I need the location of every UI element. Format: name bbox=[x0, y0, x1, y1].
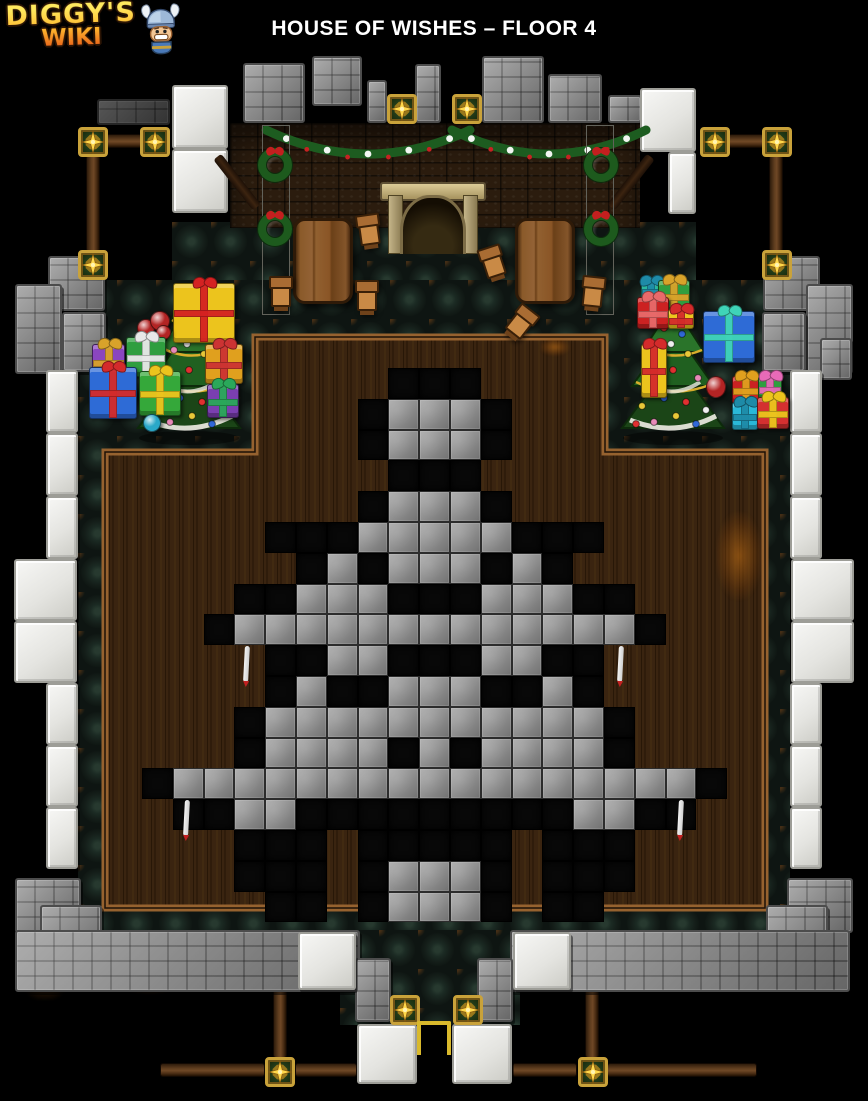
stone-floor-tile bbox=[512, 738, 542, 768]
stone-floor-tile bbox=[327, 768, 358, 799]
dug-tile bbox=[265, 584, 296, 614]
stone-floor-tile bbox=[542, 768, 573, 799]
stone-floor-tile bbox=[542, 614, 573, 645]
dug-tile bbox=[296, 522, 327, 553]
dug-tile bbox=[542, 830, 573, 861]
dug-tile bbox=[327, 522, 358, 553]
stone-wall-block bbox=[367, 80, 387, 123]
stone-floor-tile bbox=[388, 491, 419, 522]
stone-floor-tile bbox=[512, 645, 542, 676]
stone-floor-tile bbox=[419, 861, 450, 892]
dug-tile bbox=[604, 830, 635, 861]
dug-tile bbox=[419, 460, 450, 491]
dug-tile bbox=[296, 553, 327, 584]
stone-floor-tile bbox=[327, 553, 358, 584]
gift-ribbon bbox=[758, 411, 788, 418]
stone-floor-tile bbox=[327, 738, 358, 768]
marble-block bbox=[46, 496, 78, 559]
marble-block bbox=[668, 152, 696, 214]
stone-wall-block bbox=[15, 284, 62, 374]
stone-floor-tile bbox=[388, 861, 419, 892]
marble-block bbox=[791, 621, 854, 683]
christmas-wreath bbox=[584, 148, 618, 182]
marble-block bbox=[298, 932, 356, 990]
dug-tile bbox=[358, 491, 388, 522]
wooden-chair bbox=[354, 212, 384, 249]
gift-box bbox=[637, 297, 669, 329]
stone-floor-tile bbox=[296, 738, 327, 768]
stone-floor-tile bbox=[327, 707, 358, 738]
stone-floor-tile bbox=[296, 614, 327, 645]
stone-floor-tile bbox=[296, 768, 327, 799]
star-tile bbox=[140, 127, 170, 157]
gift-ribbon bbox=[638, 311, 668, 318]
dug-tile bbox=[450, 368, 481, 399]
page-title: HOUSE OF WISHES – FLOOR 4 bbox=[0, 17, 868, 41]
stone-floor-tile bbox=[573, 614, 604, 645]
stone-floor-tile bbox=[358, 738, 388, 768]
wooden-chair bbox=[268, 276, 294, 310]
marble-block bbox=[790, 745, 822, 807]
star-tile bbox=[452, 94, 482, 124]
stone-floor-tile bbox=[450, 861, 481, 892]
dug-tile bbox=[635, 614, 666, 645]
dug-tile bbox=[419, 799, 450, 830]
stone-floor-tile bbox=[481, 707, 512, 738]
dug-tile bbox=[296, 830, 327, 861]
stone-wall-block bbox=[312, 56, 362, 106]
dug-tile bbox=[573, 676, 604, 707]
dug-tile bbox=[481, 830, 512, 861]
stone-floor-tile bbox=[481, 522, 512, 553]
stone-wall-block bbox=[482, 56, 544, 123]
stone-floor-tile bbox=[512, 707, 542, 738]
dug-tile bbox=[573, 830, 604, 861]
stone-floor-tile bbox=[481, 738, 512, 768]
stone-floor-tile bbox=[450, 491, 481, 522]
stone-floor-tile bbox=[481, 584, 512, 614]
stone-wall-block bbox=[243, 63, 305, 123]
wooden-beam bbox=[86, 155, 100, 252]
stone-floor-tile bbox=[573, 707, 604, 738]
stone-floor-tile bbox=[388, 430, 419, 460]
gift-box bbox=[703, 311, 755, 363]
dug-tile bbox=[358, 861, 388, 892]
dug-tile bbox=[450, 584, 481, 614]
stone-floor-tile bbox=[173, 768, 204, 799]
marble-block bbox=[14, 621, 77, 683]
dug-tile bbox=[573, 861, 604, 892]
dug-tile bbox=[296, 861, 327, 892]
dug-tile bbox=[696, 768, 727, 799]
stone-floor-tile bbox=[388, 614, 419, 645]
chair-seat bbox=[482, 254, 507, 279]
gift-ribbon bbox=[208, 399, 238, 406]
gift-box bbox=[641, 344, 667, 398]
stone-floor-tile bbox=[481, 768, 512, 799]
stone-floor-tile bbox=[388, 707, 419, 738]
star-tile bbox=[265, 1057, 295, 1087]
stone-floor-tile bbox=[388, 676, 419, 707]
dug-tile bbox=[358, 830, 388, 861]
wooden-beam bbox=[160, 1063, 265, 1077]
stone-floor-tile bbox=[327, 614, 358, 645]
floor-scuff bbox=[540, 338, 570, 356]
dug-tile bbox=[542, 522, 573, 553]
stone-floor-tile bbox=[265, 738, 296, 768]
christmas-wreath bbox=[258, 148, 292, 182]
dug-tile bbox=[265, 676, 296, 707]
marble-block bbox=[46, 745, 78, 807]
gift-ribbon bbox=[733, 414, 757, 421]
star-tile bbox=[387, 94, 417, 124]
stone-wall-block bbox=[97, 99, 170, 125]
star-tile bbox=[78, 127, 108, 157]
ornament-ball bbox=[706, 376, 726, 398]
dug-tile bbox=[604, 707, 635, 738]
dug-tile bbox=[512, 522, 542, 553]
dug-tile bbox=[542, 861, 573, 892]
dug-tile bbox=[450, 460, 481, 491]
dug-tile bbox=[512, 799, 542, 830]
dug-tile bbox=[234, 584, 265, 614]
marble-block bbox=[790, 370, 822, 433]
gift-ribbon bbox=[206, 362, 242, 369]
marble-block bbox=[790, 807, 822, 869]
dug-tile bbox=[358, 430, 388, 460]
stone-floor-tile bbox=[388, 892, 419, 922]
dug-tile bbox=[481, 892, 512, 922]
stone-floor-tile bbox=[419, 892, 450, 922]
stone-floor-tile bbox=[542, 738, 573, 768]
marble-block bbox=[172, 85, 228, 149]
marble-block bbox=[790, 683, 822, 745]
stone-floor-tile bbox=[419, 522, 450, 553]
stone-floor-tile bbox=[450, 768, 481, 799]
stone-floor-tile bbox=[542, 584, 573, 614]
chair-seat bbox=[357, 291, 377, 311]
dug-tile bbox=[419, 368, 450, 399]
dug-tile bbox=[234, 861, 265, 892]
marble-block bbox=[46, 683, 78, 745]
stone-floor-tile bbox=[481, 614, 512, 645]
dug-tile bbox=[388, 584, 419, 614]
dug-tile bbox=[265, 830, 296, 861]
wooden-table bbox=[515, 218, 575, 304]
gift-ribbon bbox=[669, 318, 693, 325]
dug-tile bbox=[481, 399, 512, 430]
stone-floor-tile bbox=[358, 645, 388, 676]
dug-tile bbox=[234, 707, 265, 738]
christmas-wreath bbox=[584, 212, 618, 246]
stone-wall-block bbox=[820, 338, 852, 380]
stone-floor-tile bbox=[512, 768, 542, 799]
dug-tile bbox=[358, 676, 388, 707]
dug-tile bbox=[542, 645, 573, 676]
stone-floor-tile bbox=[296, 584, 327, 614]
stone-wall-block bbox=[548, 74, 602, 123]
dug-tile bbox=[388, 738, 419, 768]
dug-tile bbox=[388, 368, 419, 399]
dug-tile bbox=[604, 584, 635, 614]
dug-tile bbox=[542, 892, 573, 922]
marble-block bbox=[46, 433, 78, 496]
dug-tile bbox=[265, 861, 296, 892]
dug-tile bbox=[573, 522, 604, 553]
dug-tile bbox=[327, 799, 358, 830]
star-tile bbox=[390, 995, 420, 1025]
gift-box bbox=[205, 344, 243, 384]
stone-floor-tile bbox=[388, 522, 419, 553]
stone-floor-tile bbox=[635, 768, 666, 799]
dug-tile bbox=[358, 553, 388, 584]
chair-seat bbox=[358, 224, 381, 247]
marble-block bbox=[790, 496, 822, 559]
wooden-table bbox=[293, 218, 353, 304]
dug-tile bbox=[265, 645, 296, 676]
stone-floor-tile bbox=[388, 399, 419, 430]
wooden-beam bbox=[512, 1063, 577, 1077]
dug-tile bbox=[481, 491, 512, 522]
marble-block bbox=[14, 559, 77, 621]
dug-tile bbox=[234, 738, 265, 768]
wooden-beam bbox=[607, 1063, 757, 1077]
dug-tile bbox=[450, 738, 481, 768]
stone-floor-tile bbox=[419, 553, 450, 584]
stone-floor-tile bbox=[327, 645, 358, 676]
chair-seat bbox=[582, 286, 604, 308]
dug-tile bbox=[481, 553, 512, 584]
gift-box bbox=[732, 402, 758, 430]
stone-floor-tile bbox=[419, 491, 450, 522]
page: { "header": { "logo_line1": "DIGGY'S", "… bbox=[0, 0, 868, 1101]
dug-tile bbox=[481, 799, 512, 830]
floor-scuff bbox=[716, 512, 762, 600]
stone-floor-tile bbox=[604, 614, 635, 645]
stone-floor-tile bbox=[542, 707, 573, 738]
stone-floor-tile bbox=[388, 768, 419, 799]
gift-ribbon bbox=[704, 334, 754, 341]
stone-floor-tile bbox=[450, 614, 481, 645]
marble-block bbox=[357, 1024, 417, 1084]
ornament-ball bbox=[143, 414, 161, 432]
dug-tile bbox=[481, 861, 512, 892]
stone-floor-tile bbox=[419, 768, 450, 799]
marble-block bbox=[791, 559, 854, 621]
wooden-chair bbox=[354, 280, 380, 314]
dug-tile bbox=[419, 645, 450, 676]
gift-ribbon bbox=[174, 310, 234, 317]
wooden-chair bbox=[578, 275, 607, 312]
stone-floor-tile bbox=[234, 799, 265, 830]
dug-tile bbox=[358, 892, 388, 922]
dug-tile bbox=[573, 584, 604, 614]
stone-floor-tile bbox=[419, 430, 450, 460]
gift-box bbox=[173, 283, 235, 343]
chair-seat bbox=[271, 287, 291, 307]
stone-floor-tile bbox=[450, 676, 481, 707]
stone-wall-block bbox=[762, 312, 806, 372]
header: DIGGY'S WIKI HOUSE OF WISHES – FLOOR 4 bbox=[0, 0, 868, 58]
dug-tile bbox=[481, 430, 512, 460]
star-tile bbox=[453, 995, 483, 1025]
wooden-beam bbox=[295, 1063, 357, 1077]
stone-floor-tile bbox=[265, 614, 296, 645]
stone-floor-tile bbox=[542, 676, 573, 707]
stone-floor-tile bbox=[450, 522, 481, 553]
marble-block bbox=[513, 932, 571, 990]
dug-tile bbox=[142, 768, 173, 799]
dug-tile bbox=[296, 645, 327, 676]
stone-floor-tile bbox=[450, 707, 481, 738]
stone-floor-tile bbox=[419, 399, 450, 430]
stone-floor-tile bbox=[358, 522, 388, 553]
dug-tile bbox=[388, 799, 419, 830]
wooden-beam bbox=[769, 155, 783, 252]
gift-box bbox=[139, 371, 181, 416]
stone-floor-tile bbox=[265, 768, 296, 799]
dug-tile bbox=[358, 799, 388, 830]
star-tile bbox=[78, 250, 108, 280]
stone-floor-tile bbox=[358, 614, 388, 645]
stone-floor-tile bbox=[265, 707, 296, 738]
gift-box bbox=[89, 367, 137, 419]
stone-floor-tile bbox=[204, 768, 234, 799]
stone-floor-tile bbox=[604, 799, 635, 830]
dug-tile bbox=[512, 676, 542, 707]
dug-tile bbox=[542, 799, 573, 830]
stone-floor-tile bbox=[419, 738, 450, 768]
stone-floor-tile bbox=[327, 584, 358, 614]
stone-floor-tile bbox=[512, 584, 542, 614]
marble-block bbox=[46, 807, 78, 869]
stone-floor-tile bbox=[450, 399, 481, 430]
stone-floor-tile bbox=[481, 645, 512, 676]
stone-floor-tile bbox=[296, 676, 327, 707]
wooden-beam bbox=[106, 134, 142, 148]
dug-tile bbox=[296, 892, 327, 922]
dug-tile bbox=[327, 676, 358, 707]
gift-box bbox=[757, 397, 789, 429]
stone-floor-tile bbox=[573, 738, 604, 768]
stone-floor-tile bbox=[358, 584, 388, 614]
garland bbox=[444, 124, 654, 190]
stone-floor-tile bbox=[234, 614, 265, 645]
gift-ribbon bbox=[642, 368, 666, 375]
dug-tile bbox=[265, 522, 296, 553]
dug-tile bbox=[204, 799, 234, 830]
dug-tile bbox=[234, 830, 265, 861]
fireplace-hearth bbox=[400, 195, 466, 254]
stone-floor-tile bbox=[234, 768, 265, 799]
stone-floor-tile bbox=[573, 768, 604, 799]
dug-tile bbox=[419, 584, 450, 614]
marble-block bbox=[790, 433, 822, 496]
stone-floor-tile bbox=[573, 799, 604, 830]
star-tile bbox=[762, 250, 792, 280]
stone-floor-tile bbox=[419, 707, 450, 738]
dug-tile bbox=[450, 799, 481, 830]
wooden-beam bbox=[728, 134, 764, 148]
marble-block bbox=[46, 370, 78, 433]
stone-floor-tile bbox=[450, 553, 481, 584]
christmas-wreath bbox=[258, 212, 292, 246]
fireplace bbox=[385, 182, 481, 254]
dug-tile bbox=[573, 645, 604, 676]
gift-box bbox=[207, 384, 239, 418]
stone-floor-tile bbox=[388, 553, 419, 584]
stone-floor-tile bbox=[265, 799, 296, 830]
dug-tile bbox=[573, 892, 604, 922]
stone-wall-block bbox=[355, 958, 391, 1022]
stone-floor-tile bbox=[604, 768, 635, 799]
dug-tile bbox=[635, 799, 666, 830]
stone-floor-tile bbox=[450, 430, 481, 460]
dug-tile bbox=[388, 460, 419, 491]
stone-wall-block bbox=[608, 95, 642, 123]
gift-ribbon bbox=[90, 390, 136, 397]
star-tile bbox=[762, 127, 792, 157]
star-tile bbox=[700, 127, 730, 157]
stone-floor-tile bbox=[666, 768, 696, 799]
dug-tile bbox=[604, 861, 635, 892]
entrance-frame bbox=[417, 1021, 451, 1055]
dug-tile bbox=[542, 553, 573, 584]
stone-floor-tile bbox=[512, 614, 542, 645]
stone-floor-tile bbox=[419, 676, 450, 707]
dug-tile bbox=[296, 799, 327, 830]
stone-floor-tile bbox=[419, 614, 450, 645]
gift-ribbon bbox=[140, 391, 180, 398]
stone-floor-tile bbox=[296, 707, 327, 738]
stone-floor-tile bbox=[358, 707, 388, 738]
dug-tile bbox=[358, 399, 388, 430]
gift-ribbon bbox=[733, 388, 759, 395]
dug-tile bbox=[388, 645, 419, 676]
dug-tile bbox=[419, 830, 450, 861]
stone-floor-tile bbox=[450, 892, 481, 922]
gift-box bbox=[668, 309, 694, 329]
stone-floor-tile bbox=[358, 768, 388, 799]
dug-tile bbox=[481, 676, 512, 707]
gift-ribbon bbox=[127, 355, 165, 362]
marble-block bbox=[452, 1024, 512, 1084]
dug-tile bbox=[450, 830, 481, 861]
star-tile bbox=[578, 1057, 608, 1087]
dug-tile bbox=[388, 830, 419, 861]
dug-tile bbox=[450, 645, 481, 676]
dug-tile bbox=[604, 738, 635, 768]
dug-tile bbox=[265, 892, 296, 922]
dug-tile bbox=[204, 614, 234, 645]
stone-wall-block bbox=[415, 64, 441, 123]
stone-floor-tile bbox=[512, 553, 542, 584]
game-map: DIGGY'S WIKI HOUSE OF WISHES – FLOOR 4 bbox=[0, 0, 868, 1101]
